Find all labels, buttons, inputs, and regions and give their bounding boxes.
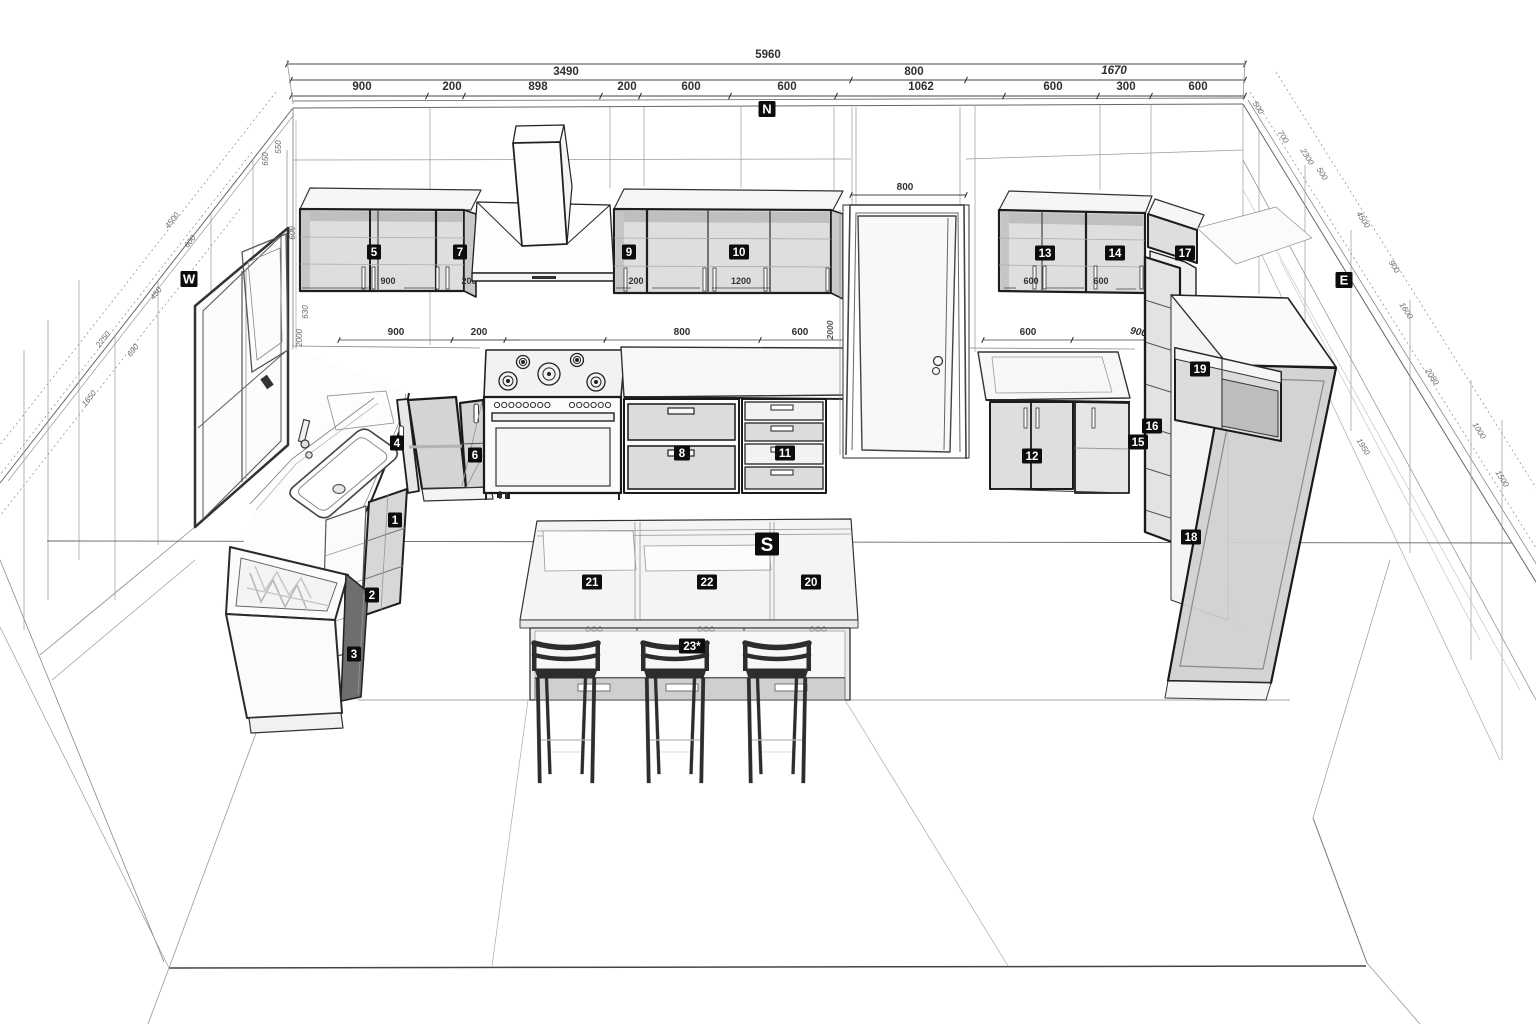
- svg-text:200: 200: [471, 327, 488, 338]
- svg-text:800: 800: [904, 66, 923, 78]
- svg-text:600: 600: [1093, 276, 1108, 286]
- svg-text:600: 600: [1043, 81, 1062, 93]
- svg-text:12: 12: [1026, 451, 1039, 463]
- svg-text:15: 15: [1132, 437, 1145, 449]
- svg-text:10: 10: [733, 247, 746, 259]
- svg-text:13: 13: [1039, 248, 1052, 260]
- svg-text:200: 200: [628, 276, 643, 286]
- svg-text:600: 600: [681, 81, 700, 93]
- svg-text:898: 898: [528, 81, 548, 93]
- svg-text:2000: 2000: [295, 329, 304, 348]
- svg-text:300: 300: [1116, 81, 1135, 93]
- svg-text:600: 600: [288, 226, 297, 240]
- svg-text:600: 600: [792, 327, 809, 338]
- svg-text:800: 800: [674, 327, 691, 338]
- svg-text:E: E: [1340, 273, 1349, 288]
- svg-text:800: 800: [897, 182, 914, 193]
- svg-text:17: 17: [1179, 248, 1192, 260]
- svg-text:600: 600: [777, 81, 796, 93]
- svg-text:600: 600: [1188, 81, 1207, 93]
- svg-text:19: 19: [1194, 364, 1207, 376]
- svg-text:6: 6: [472, 450, 478, 462]
- svg-text:21: 21: [586, 577, 599, 589]
- svg-text:3: 3: [351, 649, 357, 661]
- svg-text:4: 4: [394, 438, 401, 450]
- svg-text:900: 900: [352, 81, 371, 93]
- svg-text:9: 9: [626, 247, 632, 259]
- svg-text:22: 22: [701, 577, 714, 589]
- svg-text:550: 550: [274, 140, 283, 154]
- svg-text:1670: 1670: [1101, 65, 1127, 77]
- svg-text:14: 14: [1109, 248, 1122, 260]
- svg-text:8: 8: [679, 448, 686, 460]
- svg-text:S: S: [761, 535, 774, 556]
- svg-text:18: 18: [1185, 532, 1198, 544]
- svg-text:630: 630: [301, 305, 310, 319]
- svg-text:3490: 3490: [553, 66, 579, 78]
- svg-text:2000: 2000: [825, 320, 835, 340]
- svg-text:W: W: [183, 272, 196, 287]
- svg-text:5960: 5960: [755, 49, 781, 61]
- svg-text:11: 11: [779, 448, 792, 460]
- svg-text:200: 200: [617, 81, 636, 93]
- svg-text:1: 1: [392, 515, 399, 527]
- svg-text:1200: 1200: [731, 276, 751, 286]
- svg-text:1062: 1062: [908, 81, 934, 93]
- svg-text:23*: 23*: [683, 641, 701, 653]
- svg-text:200: 200: [442, 81, 461, 93]
- svg-text:600: 600: [1023, 276, 1038, 286]
- svg-text:N: N: [762, 102, 771, 117]
- svg-text:650: 650: [261, 152, 270, 166]
- svg-text:7: 7: [457, 247, 463, 259]
- svg-text:900: 900: [388, 327, 405, 338]
- svg-text:2: 2: [369, 590, 375, 602]
- svg-text:5: 5: [371, 247, 378, 259]
- svg-text:16: 16: [1146, 421, 1159, 433]
- svg-text:600: 600: [1020, 327, 1037, 338]
- svg-text:20: 20: [805, 577, 818, 589]
- svg-text:900: 900: [380, 276, 395, 286]
